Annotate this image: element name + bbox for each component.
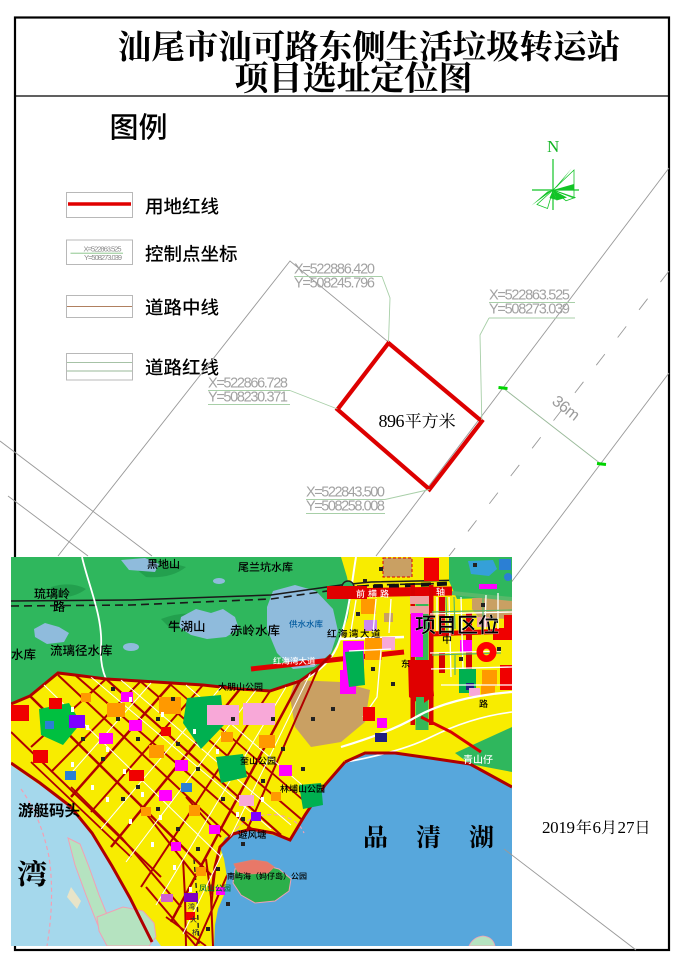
- svg-text:Y=508245.796: Y=508245.796: [294, 276, 375, 292]
- svg-text:6: 6: [593, 818, 602, 837]
- svg-text:Y=508273.039: Y=508273.039: [84, 253, 122, 262]
- svg-text:Y=508258.008: Y=508258.008: [306, 499, 385, 515]
- svg-text:896: 896: [379, 411, 405, 431]
- svg-text:27: 27: [618, 818, 636, 837]
- svg-text:N: N: [547, 137, 559, 156]
- svg-text:Y=508230.371: Y=508230.371: [208, 390, 288, 406]
- svg-text:Y=508273.039: Y=508273.039: [489, 302, 570, 318]
- svg-text:2019: 2019: [542, 818, 575, 837]
